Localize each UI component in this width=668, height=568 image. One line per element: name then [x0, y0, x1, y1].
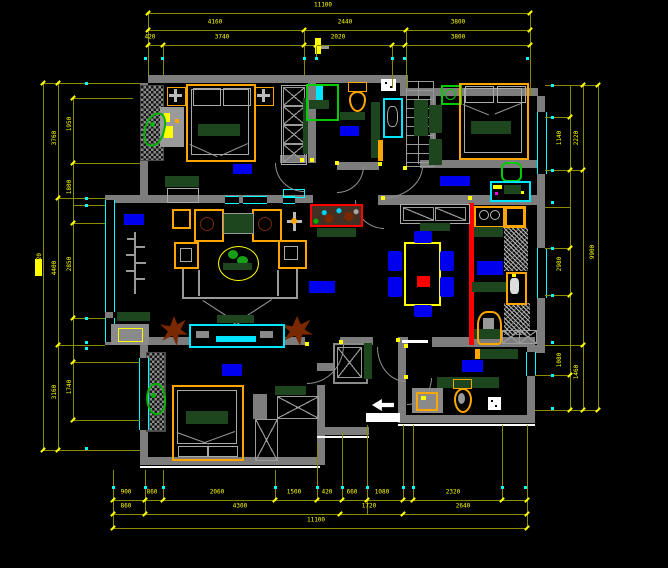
dim-tick-icon — [524, 525, 530, 531]
room-label-block — [477, 261, 503, 275]
dimension-label: 2060 — [210, 489, 224, 495]
dimension-label: 1080 — [375, 489, 389, 495]
reference-dot-icon — [112, 486, 115, 489]
ceiling-fan-icon — [445, 89, 456, 100]
dimension-label: 11100 — [307, 517, 325, 523]
dimension-label: 2320 — [446, 489, 460, 495]
wardrobe-section — [255, 419, 278, 461]
speaker — [196, 331, 209, 338]
reference-dot-icon — [341, 486, 344, 489]
dimension-line — [406, 30, 407, 88]
lamp-icon — [257, 94, 270, 97]
window — [225, 196, 239, 204]
dimension-line — [58, 198, 105, 199]
floor-drain — [488, 397, 501, 410]
dimension-line — [73, 223, 105, 224]
entry-shelf — [364, 343, 372, 379]
dimension-label: 1460 — [574, 365, 580, 379]
window — [537, 112, 547, 174]
wardrobe-frame — [253, 394, 267, 419]
dimension-label: 2980 — [557, 257, 563, 271]
dimension-line — [73, 98, 74, 420]
reference-dot-icon — [366, 486, 369, 489]
dimension-label: 4160 — [208, 19, 222, 25]
room-label-block — [233, 164, 252, 174]
kitchen-counter — [472, 282, 506, 292]
branch-decor — [126, 254, 135, 256]
wall — [398, 415, 535, 423]
shelf — [275, 386, 306, 395]
dimension-line — [545, 207, 570, 208]
branch-decor — [127, 238, 135, 240]
dimension-label: 2440 — [338, 19, 352, 25]
dining-chair — [414, 305, 432, 317]
hall-shelf — [317, 228, 356, 237]
entry-door-slab — [366, 413, 400, 422]
reference-dot-icon — [412, 486, 415, 489]
window — [105, 200, 115, 312]
reference-dot-icon — [402, 486, 405, 489]
wall — [317, 427, 369, 435]
window — [537, 248, 547, 298]
chair — [501, 162, 522, 182]
reference-dot-icon — [551, 341, 554, 344]
dimension-line — [583, 85, 584, 410]
dimension-label: 11100 — [314, 2, 332, 8]
reference-dot-icon — [85, 82, 88, 85]
wall-face-line — [317, 436, 369, 438]
bath-counter — [480, 349, 518, 359]
speaker — [260, 331, 273, 338]
reference-dot-icon — [162, 486, 165, 489]
dimension-line — [342, 432, 343, 500]
desk-item — [495, 192, 498, 195]
bed-footboard — [208, 446, 238, 457]
faucet — [512, 274, 516, 277]
dimension-line — [317, 443, 318, 500]
door-hinge-icon — [378, 162, 382, 166]
reference-dot-icon — [316, 486, 319, 489]
window — [243, 196, 267, 204]
room-label-block — [222, 364, 242, 376]
wardrobe-section — [283, 87, 305, 106]
dimension-label: 1500 — [287, 489, 301, 495]
door-hinge-icon — [396, 338, 400, 342]
branch-decor — [136, 262, 146, 264]
dimension-label: 1950 — [67, 117, 73, 131]
cabinet-front — [118, 328, 143, 342]
bed-blanket — [198, 124, 240, 136]
reference-dot-icon — [274, 486, 277, 489]
wall-face-line — [140, 466, 320, 468]
closet-shelf — [414, 100, 428, 136]
lamp-icon — [169, 94, 182, 97]
washing-machine-door — [416, 392, 438, 411]
door-arc — [275, 163, 304, 192]
reference-dot-icon — [85, 341, 88, 344]
shoe-cabinet-front — [337, 347, 362, 378]
reference-dot-icon — [501, 486, 504, 489]
reference-dot-icon — [315, 57, 318, 60]
dimension-label: 1740 — [67, 380, 73, 394]
drain-dot — [491, 400, 493, 402]
wall-hatch — [504, 227, 528, 271]
sofa-center-cushion — [223, 213, 254, 234]
bed-blanket — [471, 121, 511, 134]
door-hinge-icon — [381, 196, 385, 200]
wall-face-line — [398, 424, 535, 426]
pillow — [465, 86, 494, 103]
dimension-label: 2640 — [456, 503, 470, 509]
reference-dot-icon — [85, 317, 88, 320]
dimension-label: 420 — [145, 34, 156, 40]
reference-dot-icon — [85, 197, 88, 200]
reference-dot-icon — [85, 447, 88, 450]
reference-dot-icon — [85, 347, 88, 350]
wardrobe-section — [283, 125, 305, 144]
toilet — [349, 91, 366, 112]
door-arc — [337, 166, 364, 193]
dimension-line — [148, 13, 530, 14]
toilet-seat — [458, 393, 465, 404]
sofa-cushion — [200, 217, 214, 231]
dimension-line — [304, 30, 305, 75]
dimension-label: 11320 — [37, 253, 43, 271]
dimension-line — [73, 163, 140, 164]
tv — [216, 336, 256, 342]
dimension-line — [148, 45, 530, 46]
sink-basin — [510, 278, 519, 294]
dimension-label: 3760 — [52, 131, 58, 145]
door-jamb — [378, 140, 383, 161]
dimension-label: 900 — [121, 489, 132, 495]
drain-dot — [495, 405, 497, 407]
dimension-label: 2220 — [574, 131, 580, 145]
bed-blanket — [186, 411, 228, 424]
bath-shelf — [340, 112, 365, 120]
reference-dot-icon — [303, 57, 306, 60]
floor-lamp-icon — [291, 218, 297, 224]
reference-dot-icon — [551, 116, 554, 119]
dimension-line — [73, 362, 140, 363]
heater-dial — [483, 318, 494, 329]
dimension-line — [530, 13, 531, 96]
door-hinge-icon — [339, 340, 343, 344]
wardrobe-shelf — [429, 105, 442, 133]
armchair — [172, 209, 191, 229]
reference-dot-icon — [161, 57, 164, 60]
dimension-label: 420 — [322, 489, 333, 495]
desk-item — [521, 191, 524, 194]
dining-chair — [414, 231, 432, 243]
plant-icon — [150, 122, 155, 127]
bench-base — [167, 188, 199, 203]
dimension-line — [163, 45, 164, 75]
pillow — [223, 88, 251, 106]
reference-dot-icon — [551, 201, 554, 204]
wardrobe-shelf — [429, 139, 442, 165]
door-hinge-icon — [335, 161, 339, 165]
stove-burner — [490, 210, 500, 220]
dimension-line — [545, 345, 583, 346]
dining-table — [404, 242, 441, 306]
room-label-block — [309, 281, 335, 293]
cabinet-section — [519, 330, 537, 344]
bench — [165, 176, 199, 187]
dimension-label: 2020 — [331, 34, 345, 40]
dimension-label: 9900 — [590, 245, 596, 259]
dimension-line — [43, 83, 44, 450]
door-threshold — [402, 340, 428, 343]
side-table-inner — [180, 248, 192, 262]
plant-icon — [151, 393, 156, 398]
dimension-label: 1080 — [557, 353, 563, 367]
dimension-line — [73, 420, 140, 421]
room-label-block — [462, 360, 483, 372]
dimension-label: 4400 — [52, 261, 58, 275]
dimension-label: 660 — [347, 489, 358, 495]
sideboard-door — [435, 207, 466, 221]
branch-decor — [136, 246, 145, 248]
dimension-label: 3740 — [215, 34, 229, 40]
sideboard-shelf — [420, 223, 450, 231]
dimension-line — [73, 318, 105, 319]
door-hinge-icon — [403, 166, 407, 170]
dimension-label: 3800 — [451, 34, 465, 40]
dimension-line — [113, 500, 527, 501]
dimension-label: 1720 — [362, 503, 376, 509]
door-hinge-icon — [300, 158, 304, 162]
pillow — [497, 86, 526, 103]
dimension-label: 1800 — [67, 180, 73, 194]
desk-item — [493, 185, 502, 189]
reference-dot-icon — [526, 57, 529, 60]
vent-box — [381, 79, 396, 91]
reference-dot-icon — [144, 57, 147, 60]
reference-dot-icon — [551, 169, 554, 172]
room-label-block — [440, 176, 470, 186]
kitchen-counter — [474, 227, 503, 237]
reference-dot-icon — [85, 204, 88, 207]
desk-item — [504, 185, 521, 194]
dimension-line — [598, 85, 599, 410]
dimension-line — [58, 345, 105, 346]
dimension-line — [148, 30, 530, 31]
dimension-label: 3160 — [52, 385, 58, 399]
sectional-divider — [198, 270, 200, 296]
room-label-block — [340, 126, 359, 136]
shower-ledge — [309, 100, 329, 109]
reference-dot-icon — [551, 374, 554, 377]
room-label-block — [124, 214, 144, 225]
dim-tick-icon — [595, 407, 601, 413]
sectional-divider — [277, 270, 279, 296]
aquarium — [310, 204, 363, 227]
door-hinge-icon — [468, 196, 472, 200]
dining-chair — [388, 251, 402, 271]
reference-dot-icon — [524, 486, 527, 489]
door-hinge-icon — [404, 375, 408, 379]
stove-burner — [479, 210, 489, 220]
dining-chair — [440, 251, 454, 271]
washbasin-bowl — [387, 106, 398, 127]
reference-dot-icon — [551, 294, 554, 297]
dimension-label: 860 — [147, 489, 158, 495]
dimension-line — [275, 470, 276, 500]
console-shelf — [117, 312, 150, 321]
dimension-line — [73, 98, 133, 99]
dining-chair — [440, 277, 454, 297]
reference-dot-icon — [403, 57, 406, 60]
table-centerpiece — [417, 276, 430, 287]
side-table-inner — [284, 246, 298, 260]
section-marker — [321, 46, 329, 49]
dimension-line — [73, 205, 105, 206]
window — [526, 352, 536, 376]
pillow — [193, 88, 221, 106]
dimension-line — [113, 514, 527, 515]
vent-dot — [385, 82, 387, 84]
wardrobe-section — [277, 396, 319, 419]
dimension-label: 2850 — [67, 257, 73, 271]
dimension-label: 4300 — [233, 503, 247, 509]
dimension-line — [392, 45, 393, 88]
dimension-label: 3800 — [451, 19, 465, 25]
tv-shelf — [217, 315, 254, 323]
cabinet-section — [502, 330, 520, 344]
dimension-line — [163, 470, 164, 500]
dimension-line — [58, 83, 59, 450]
floorplan-canvas[interactable]: 1110041602440380042037402020380090086020… — [0, 0, 668, 568]
entry-arrow-icon — [372, 399, 394, 411]
dimension-label: 860 — [121, 503, 132, 509]
sideboard-door — [403, 207, 434, 221]
dresser-knob — [175, 119, 179, 123]
dimension-line — [113, 528, 527, 529]
door-arc — [377, 347, 406, 382]
reference-dot-icon — [391, 57, 394, 60]
door-hinge-icon — [305, 342, 309, 346]
door-hinge-icon — [310, 158, 314, 162]
reference-dot-icon — [551, 407, 554, 410]
wardrobe-section — [283, 106, 305, 125]
reference-dot-icon — [551, 84, 554, 87]
dining-chair — [388, 277, 402, 297]
washer-knob — [421, 396, 426, 400]
sofa-cushion — [258, 217, 272, 231]
bed-footboard — [178, 446, 208, 457]
branch-decor — [136, 278, 145, 280]
kitchen-cabinet — [504, 206, 526, 228]
dimension-label: 1140 — [557, 131, 563, 145]
branch-decor — [126, 270, 136, 272]
reference-dot-icon — [551, 247, 554, 250]
door-hinge-icon — [404, 344, 408, 348]
